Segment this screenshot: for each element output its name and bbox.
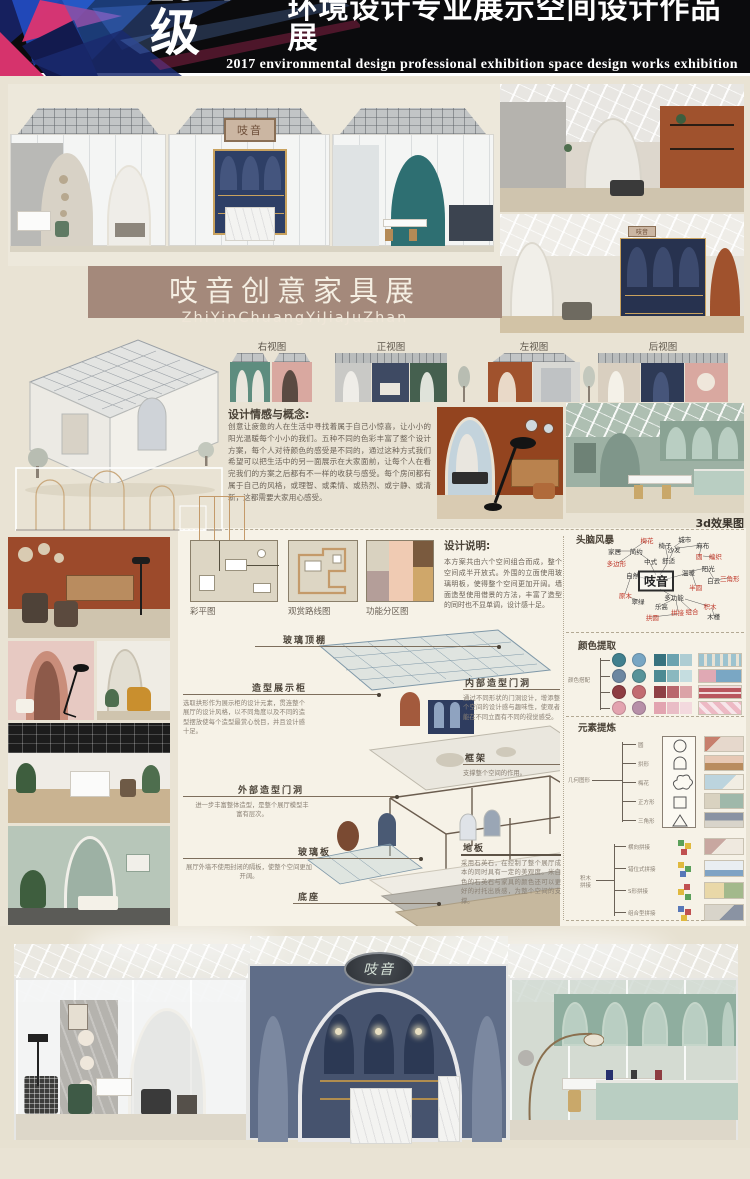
plan-furniture: [199, 575, 215, 591]
plan-furniture: [257, 549, 266, 558]
view-left-elevation: [488, 353, 580, 402]
brainstorm-node: 白云: [707, 575, 720, 585]
brainstorm-node: 拼接: [671, 607, 684, 617]
ref-photo: [704, 736, 744, 752]
wall-frame: [126, 854, 150, 872]
callout-line: [461, 854, 561, 856]
round-side-table: [518, 1050, 534, 1066]
route-line: [289, 541, 357, 601]
leader-line: [214, 496, 215, 540]
shelf: [670, 124, 734, 126]
wall-dot: [60, 210, 67, 217]
plan-color-label: 彩平图: [190, 605, 278, 617]
palette-circle: [632, 701, 646, 715]
ref-photo: [704, 755, 744, 771]
palette-circle: [612, 653, 626, 667]
plan-zoning: [366, 540, 434, 602]
divider: [566, 716, 744, 717]
zone: [413, 541, 433, 567]
shape-label-square: 正方形: [638, 798, 655, 806]
zone: [413, 567, 433, 601]
green-chair: [68, 1084, 92, 1114]
zhiyin-sign-plaque-text: 吱音: [363, 959, 395, 979]
bay-center: [248, 964, 508, 1140]
brainstorm-node: 原木: [619, 590, 632, 600]
plant: [20, 870, 46, 908]
chair: [385, 229, 393, 241]
niche: [602, 1002, 628, 1046]
kitchen-counter: [449, 205, 493, 241]
leader-line: [229, 496, 230, 540]
callout-frame-desc: 支撑整个空间的作用。: [463, 769, 560, 778]
poster-root: 2017级 环境设计专业展示空间设计作品展 2017 environmental…: [0, 0, 750, 1179]
dark-furniture: [141, 1089, 171, 1115]
render-top-right-1: [500, 84, 744, 212]
view-label-front: 正视图: [335, 339, 447, 353]
wicker-chair: [662, 485, 671, 499]
shape-label-circle: 圆: [638, 741, 644, 749]
room: [230, 362, 270, 402]
pattern-thumb: [698, 653, 742, 667]
teal-arch-niche: [391, 155, 445, 247]
brainstorm-node: 舒适: [662, 555, 675, 565]
floor-lamp: [477, 437, 537, 513]
roof-module-3: [332, 108, 494, 134]
bench: [78, 896, 118, 910]
floor: [510, 1120, 736, 1140]
bottom-render: 吱音: [0, 926, 750, 1148]
plan-furniture: [225, 559, 247, 571]
palette-circle: [632, 653, 646, 667]
floor: [16, 1114, 246, 1140]
swatch: [667, 686, 679, 698]
dining-table: [383, 219, 427, 227]
callout-line: [183, 694, 379, 695]
mustard-chair: [127, 687, 151, 711]
banner-title: 吱音创意家具展: [88, 268, 502, 310]
room: [335, 363, 371, 402]
swatch: [667, 702, 679, 714]
plant: [564, 144, 572, 152]
room: [272, 362, 312, 402]
upper-wall: [660, 421, 744, 461]
plant: [142, 765, 160, 793]
exhibition-banner: 吱音创意家具展 ZhiYinChuangYiJiaJuZhan: [88, 266, 502, 318]
ref-photo: [704, 812, 744, 828]
callout-frame: 框架: [465, 751, 487, 764]
palette-panel: 颜色提取 颜色搭配: [566, 636, 746, 716]
view-label-right: 右视图: [228, 339, 316, 353]
palette-side-label: 颜色搭配: [568, 676, 590, 684]
view-front-elevation: [335, 353, 447, 402]
brainstorm-node: 阳光: [702, 563, 715, 573]
furniture: [562, 302, 592, 320]
swatch: [654, 686, 666, 698]
brainstorm-node: 温暖: [682, 567, 695, 577]
divider: [566, 632, 744, 633]
thumb-dark-ceiling-corridor: [8, 723, 170, 823]
niche-light: [375, 1028, 382, 1035]
floor: [97, 711, 170, 720]
plan-color: [190, 540, 278, 602]
callout-base: 底座: [298, 890, 320, 903]
floor-lamp: [140, 563, 142, 615]
block-label-4: 组合型拼接: [628, 909, 656, 917]
gold-shelf-line: [625, 295, 703, 296]
bay-right: [508, 978, 738, 1140]
callout-inner-arch: 内部造型门洞: [465, 676, 531, 689]
green-chair: [55, 221, 69, 237]
room: [488, 362, 532, 402]
header-subtitle: 2017 environmental design professional e…: [220, 57, 744, 73]
room: [685, 363, 728, 402]
brainstorm-node: 三角形: [720, 573, 740, 583]
shape-label-triangle: 三角形: [638, 817, 655, 825]
dark-sofa: [610, 180, 644, 196]
brainstorm-node: 木槿: [707, 611, 720, 621]
white-sideboard: [96, 1078, 132, 1096]
ref-photo: [704, 904, 744, 921]
page-title: 环境设计专业展示空间设计作品展: [287, 0, 744, 58]
view-label-left: 左视图: [488, 339, 580, 353]
room-module-1: [10, 134, 166, 246]
plant: [105, 689, 119, 707]
pattern-thumb: [698, 669, 742, 683]
callout-line: [463, 764, 560, 765]
brainstorm-node: 乐高: [655, 601, 668, 611]
block-label-1: 横向拼接: [628, 843, 650, 851]
display-arch: [679, 247, 699, 287]
callout-line: [463, 689, 560, 690]
vase: [631, 1070, 637, 1079]
light-wall: [333, 145, 379, 247]
room: [533, 362, 580, 402]
header-year: 2017级: [150, 0, 287, 58]
zhiyin-sign-plaque: 吱音: [344, 952, 414, 986]
counter-objects: [606, 1070, 736, 1080]
render-top-right-2: 吱音: [500, 214, 744, 333]
leader-line: [199, 496, 200, 540]
header-band: 2017级 环境设计专业展示空间设计作品展 2017 environmental…: [0, 0, 750, 76]
shape-label-arch: 拱形: [638, 760, 649, 768]
thumb-mint-room: [8, 826, 170, 925]
vase: [606, 1070, 613, 1080]
swatch: [654, 702, 666, 714]
brainstorm-node: 圆: [696, 551, 703, 561]
round-mirror: [525, 419, 538, 432]
elements-panel: 元素提炼 几何图形 圆 拱形 梅花 正方形 三角形 积木拼接: [566, 718, 746, 918]
callout-line: [255, 646, 499, 647]
desk: [17, 211, 51, 231]
shape-label-blossom: 梅花: [638, 779, 649, 787]
wall-dot: [59, 175, 68, 184]
zhiyin-sign-small: 吱音: [628, 226, 656, 237]
callout-outer-arch: 外部造型门洞: [238, 783, 304, 796]
concept-heading: 设计情感与概念:: [228, 406, 388, 422]
plan-route: [288, 540, 358, 602]
ref-photo: [704, 774, 744, 790]
round-mirror: [543, 423, 554, 434]
brainstorm-node: 简约: [630, 546, 643, 556]
display-arch: [264, 156, 281, 190]
palette-heading: 颜色提取: [578, 638, 616, 652]
bay-left: [14, 978, 248, 1140]
view-label-back: 后视图: [598, 339, 728, 353]
zone: [389, 541, 413, 601]
bracket: [600, 658, 601, 710]
bracket: [614, 844, 615, 916]
dark-corner: [574, 443, 596, 473]
leader-line: [199, 496, 245, 497]
ref-photo: [704, 838, 744, 855]
swatch: [680, 686, 692, 698]
concept-body: 创意让疲惫的人在生活中寻找着属于自己小惊喜，让小小的阳光温暖每个小小的我们。五种…: [228, 421, 431, 521]
brainstorm-node: 半圆: [689, 582, 702, 592]
zhiyin-sign-small-text: 吱音: [636, 227, 648, 236]
callout-display-cabinet: 造型展示柜: [252, 681, 307, 694]
thumb-yellow-chair-room: [97, 641, 170, 720]
brainstorm-node: 中式: [644, 556, 657, 566]
main-elevation-render: 吱音: [8, 84, 500, 266]
dark-floor: [8, 908, 170, 925]
plant: [676, 114, 686, 124]
display-arch: [653, 247, 673, 287]
callout-glass-panel-desc: 展厅外墙不使用封闭的隔板，使整个空间更加开阔。: [183, 863, 315, 882]
brainstorm-node: 自然: [626, 570, 639, 580]
wall-frame: [68, 1004, 88, 1030]
brainstorm-node: 家居: [608, 546, 621, 556]
plan-furniture: [253, 583, 271, 593]
gold-shelf: [320, 1080, 440, 1082]
wall-dot: [61, 193, 69, 201]
callout-inner-arch-desc: 通过不同形状的门洞设计，增添整个空间的设计感与趣味性，使观者能在不同立面有不同的…: [463, 694, 560, 722]
callout-glass-roof: 玻璃顶棚: [283, 633, 327, 646]
pattern-thumb: [698, 685, 742, 699]
brainstorm-node: 沙发: [668, 544, 681, 554]
design-note: 设计说明: 本方案共由六个空间组合而成，整个空间成半开放式。外围的立面使用玻璃明…: [444, 538, 562, 630]
room: [598, 363, 640, 402]
brainstorm-node: 城市: [678, 534, 691, 544]
floor-lamp: [18, 1032, 58, 1092]
palette-circle: [632, 669, 646, 683]
block-glyphs: [672, 838, 700, 922]
thumb-terracotta-lounge: [8, 537, 170, 638]
round-mirror: [38, 543, 50, 555]
chair: [120, 779, 136, 797]
swatch: [680, 702, 692, 714]
round-mirror: [18, 547, 33, 562]
wicker-chair: [568, 1090, 581, 1112]
callout-line: [183, 796, 397, 797]
display-arch: [220, 156, 237, 190]
counter: [694, 469, 744, 495]
side-arch: [258, 1016, 288, 1142]
round-art: [80, 1056, 94, 1070]
niche-light: [415, 1028, 422, 1035]
armchair: [54, 601, 78, 627]
swatch: [680, 654, 692, 666]
niche: [682, 1002, 708, 1046]
display-arch: [242, 156, 259, 190]
brainstorm-node: 组合: [686, 606, 699, 616]
block-label-3: S形拼接: [628, 887, 648, 895]
mint-counter: [596, 1080, 738, 1120]
dark-furniture: [177, 1095, 197, 1115]
long-table: [628, 475, 692, 484]
plan-route-label: 观赏路线图: [288, 605, 368, 617]
design-note-heading: 设计说明:: [444, 538, 562, 553]
zhiyin-sign-text: 吱音: [237, 122, 263, 138]
round-mirror: [54, 553, 64, 563]
armchair: [22, 593, 48, 623]
plan-zoning-label: 功能分区图: [366, 605, 436, 617]
view-back-elevation: [598, 353, 728, 402]
palette-circle: [612, 685, 626, 699]
callout-line: [293, 903, 439, 904]
render-green-room: [566, 403, 744, 513]
shape-glyphs: [663, 737, 697, 829]
round-art: [78, 1030, 94, 1046]
zone: [367, 571, 389, 601]
stool: [533, 483, 555, 499]
gold-shelf-line: [625, 313, 703, 314]
elevation-line-sketch: [12, 460, 228, 536]
brainstorm-node: 拱圆: [646, 612, 659, 622]
ref-photo: [704, 882, 744, 899]
stool: [16, 699, 34, 713]
marble-counter: [350, 1088, 412, 1144]
palette-circle: [612, 701, 626, 715]
brainstorm-panel: 头脑风暴 吱音 梅花 椅子 沙发 城市 麻布 简约 家居 多边形 中式 舒适 圆…: [566, 530, 746, 628]
divider-vertical: [563, 536, 564, 920]
thumb-pink-arch-room: [8, 641, 94, 720]
display-arch: [627, 247, 647, 287]
side-arch: [472, 1016, 502, 1142]
swatch: [680, 670, 692, 682]
lamp-head: [132, 557, 150, 564]
dark-cabinet: [115, 223, 145, 237]
niche-light: [335, 1028, 342, 1035]
vase: [655, 1070, 662, 1080]
elements-heading: 元素提炼: [578, 720, 616, 734]
gold-shelf-line: [218, 195, 284, 196]
leader-line: [244, 496, 245, 540]
swatch: [667, 654, 679, 666]
room: [410, 363, 447, 402]
brainstorm-node: 翠绿: [632, 596, 645, 606]
design-note-body: 本方案共由六个空间组合而成，整个空间成半开放式。外围的立面使用玻璃明板，使得整个…: [444, 557, 562, 611]
callout-line: [183, 858, 421, 859]
brainstorm-node: 麻布: [696, 540, 709, 550]
callout-display-cabinet-desc: 选取拱形作为展示柜的设计元素，贯连整个展厅的设计风格，以不同角度以及不同的造型摆…: [183, 699, 305, 737]
render-terracotta-room: [437, 407, 563, 519]
counter: [70, 771, 110, 797]
niche-arch: [364, 1014, 394, 1074]
palette-circle: [612, 669, 626, 683]
tree: [456, 366, 472, 402]
shelf: [670, 148, 734, 150]
callout-floor-desc: 采用石英石，在控制了整个展厅成本的同时具有一定的美观度。米白色的石英石与家具的颜…: [461, 859, 561, 906]
room-module-3: [332, 134, 494, 246]
ref-photo: [704, 860, 744, 877]
room: [641, 363, 684, 402]
marble-plinth: [438, 1076, 460, 1142]
header-title-row: 2017级 环境设计专业展示空间设计作品展: [150, 2, 744, 58]
wicker-chair: [634, 485, 643, 499]
brainstorm-node: 积木: [704, 601, 717, 611]
swatch: [654, 670, 666, 682]
wood-credenza: [66, 575, 134, 601]
niche: [722, 1002, 734, 1046]
ground-shadow: [10, 246, 494, 252]
brainstorm-node: 编织: [709, 551, 722, 561]
brainstorm-center: 吱音: [638, 570, 674, 591]
banner-pinyin: ZhiYinChuangYiJiaJuZhan: [88, 310, 502, 326]
niche-arch: [324, 1014, 354, 1074]
roof-module-1: [10, 108, 166, 134]
block-label-2: 错位式拼接: [628, 865, 656, 873]
niche-arch: [404, 1014, 434, 1074]
black-grid-ceiling: [8, 723, 170, 753]
callout-glass-panel: 玻璃板: [298, 845, 331, 858]
palette-circle: [632, 685, 646, 699]
swatch: [667, 670, 679, 682]
elements-group2-label: 积木拼接: [580, 876, 594, 890]
niche: [642, 1002, 668, 1046]
swatch: [654, 654, 666, 666]
room: [372, 363, 409, 402]
brainstorm-node: 多功能: [664, 592, 684, 602]
callout-outer-arch-desc: 进一步丰富整体造型，是整个展厅模型丰富有层次。: [193, 801, 311, 820]
ref-photo: [704, 793, 744, 809]
view-right-elevation: [228, 353, 316, 402]
zone: [367, 541, 389, 571]
shape-strip: [662, 736, 696, 828]
pattern-thumb: [698, 701, 742, 715]
tripod-lamp: [48, 663, 92, 719]
chair: [409, 229, 417, 241]
tree: [582, 366, 596, 402]
callout-floor: 地板: [463, 841, 485, 854]
wood-floor: [500, 316, 744, 333]
brainstorm-node: 梅花: [641, 535, 654, 545]
plant: [16, 763, 36, 793]
counter: [225, 207, 275, 241]
elements-group1-label: 几何图形: [568, 776, 590, 784]
zhiyin-sign: 吱音: [224, 118, 276, 142]
brainstorm-node: 多边形: [607, 558, 627, 568]
room-module-2: [168, 134, 330, 246]
